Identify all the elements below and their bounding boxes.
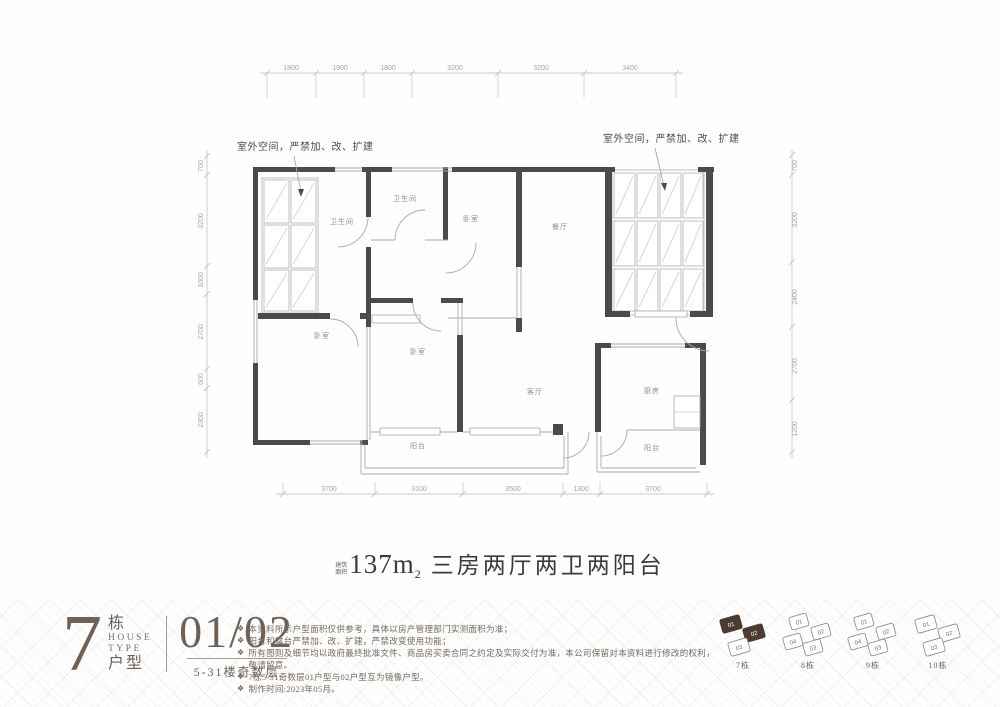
dim-right-0: 700 [792, 160, 799, 172]
room-label-bedroom1: 卧室 [314, 331, 330, 340]
ac-grille-left [262, 178, 318, 313]
keyplan-name: 7栋 [736, 660, 750, 671]
dim-bottom-2: 3500 [505, 486, 521, 493]
ac-grille-right [612, 170, 704, 315]
dim-left-3: 2700 [198, 324, 205, 340]
clover-bullet-icon: ❖ [237, 647, 244, 658]
keyplan-name: 10栋 [929, 660, 948, 671]
room-label-bath1: 卫生间 [330, 217, 354, 226]
dim-top-2: 1800 [380, 65, 396, 72]
note-line: ❖ 本资料所示户型面积仅供参考，具体以房产管理部门实测面积为准； [237, 623, 717, 635]
disclaimer-notes: ❖ 本资料所示户型面积仅供参考，具体以房产管理部门实测面积为准； ❖ 阳台和露台… [237, 623, 717, 695]
room-label-balcony1: 阳台 [410, 441, 426, 450]
room-label-kitchen: 厨房 [644, 386, 660, 395]
area-value: 137m [349, 549, 415, 580]
area-superscript: 2 [415, 568, 421, 580]
annotation-right-text: 室外空间，严禁加、改、扩建 [603, 132, 740, 145]
clover-bullet-icon: ❖ [237, 635, 244, 646]
dimension-right: 700 3200 2400 2700 1200 [789, 150, 799, 458]
room-label-bedroom2: 卧室 [463, 214, 479, 223]
room-label-balcony2: 阳台 [644, 443, 660, 452]
dimension-bottom: 3700 3100 3500 1300 3700 [276, 482, 714, 497]
room-label-bath2: 卫生间 [393, 194, 417, 203]
keyplan-map-7: 01 02 03 [717, 613, 769, 659]
dim-left-5: 2300 [198, 412, 205, 428]
dim-left-4: 600 [198, 373, 205, 385]
dim-left-2: 1000 [198, 272, 205, 288]
keyplan-block-7: 01 02 03 7栋 [717, 613, 769, 671]
clover-bullet-icon: ❖ [237, 623, 244, 634]
annotation-left-text: 室外空间，严禁加、改、扩建 [237, 140, 374, 153]
dim-top-5: 3400 [622, 65, 638, 72]
note-line: ❖ 所有图则及细节均以政府最终批准文件、商品房买卖合同之约定及实际交付为准，本公… [237, 647, 717, 671]
dimension-top: 1800 1900 1800 3200 3200 3400 [260, 65, 683, 98]
dim-bottom-1: 3100 [411, 486, 427, 493]
layout-description: 三房两厅两卫两阳台 [431, 546, 665, 580]
keyplan-name: 9栋 [866, 660, 880, 671]
dimension-left: 700 3200 1000 2700 600 2300 [198, 150, 210, 458]
note-line: ❖ 阳台和露台严禁加、改、扩建，严禁改变使用功能； [237, 635, 717, 647]
note-line: ❖ 制作时间:2023年05月。 [237, 683, 717, 695]
room-label-dining: 餐厅 [552, 222, 568, 231]
dim-right-4: 1200 [792, 421, 799, 437]
plan-title: 建筑 面积 137m 2 三房两厅两卫两阳台 [0, 546, 1000, 580]
footer-band: 7 栋 HOUSE TYPE 户型 01/02 5-31楼奇数层 ❖ 本资料所示… [0, 600, 1000, 707]
vertical-divider [166, 616, 167, 672]
area-mini-label: 建筑 面积 [335, 563, 347, 576]
keyplan-map-9: 01 02 04 03 [847, 613, 899, 659]
dim-right-3: 2700 [792, 358, 799, 374]
dim-right-1: 3200 [792, 212, 799, 228]
block-words: 栋 HOUSE TYPE 户型 [108, 615, 152, 672]
keyplan-map-8: 01 02 04 03 [782, 613, 834, 659]
room-label-living: 客厅 [527, 387, 543, 396]
keyplan-block-9: 01 02 04 03 9栋 [847, 613, 899, 671]
dim-top-3: 3200 [447, 65, 463, 72]
room-label-bedroom3: 卧室 [410, 347, 426, 356]
dim-top-0: 1800 [283, 65, 299, 72]
dim-bottom-3: 1300 [573, 486, 589, 493]
dim-bottom-4: 3700 [645, 486, 661, 493]
block-number: 7 [62, 606, 102, 682]
clover-bullet-icon: ❖ [237, 683, 244, 694]
floorplan-sheet: 1800 1900 1800 3200 3200 3400 3700 3100 … [0, 0, 1000, 707]
keyplan-block-10: 01 02 03 10栋 [912, 613, 964, 671]
dim-right-2: 2400 [792, 289, 799, 305]
dim-left-0: 700 [198, 160, 205, 172]
dim-top-1: 1900 [332, 65, 348, 72]
dim-bottom-0: 3700 [321, 486, 337, 493]
keyplan-map-10: 01 02 03 [912, 613, 964, 659]
keyplan-block-8: 01 02 04 03 8栋 [782, 613, 834, 671]
building-keyplans: 01 02 03 7栋 01 02 04 [717, 613, 964, 671]
dim-left-1: 3200 [198, 213, 205, 229]
clover-bullet-icon: ❖ [237, 671, 244, 682]
dim-top-4: 3200 [533, 65, 549, 72]
note-line: ❖ 7栋5-31奇数层01户型与02户型互为镜像户型。 [237, 671, 717, 683]
floorplan-drawing: 1800 1900 1800 3200 3200 3400 3700 3100 … [0, 0, 1000, 540]
keyplan-name: 8栋 [801, 660, 815, 671]
